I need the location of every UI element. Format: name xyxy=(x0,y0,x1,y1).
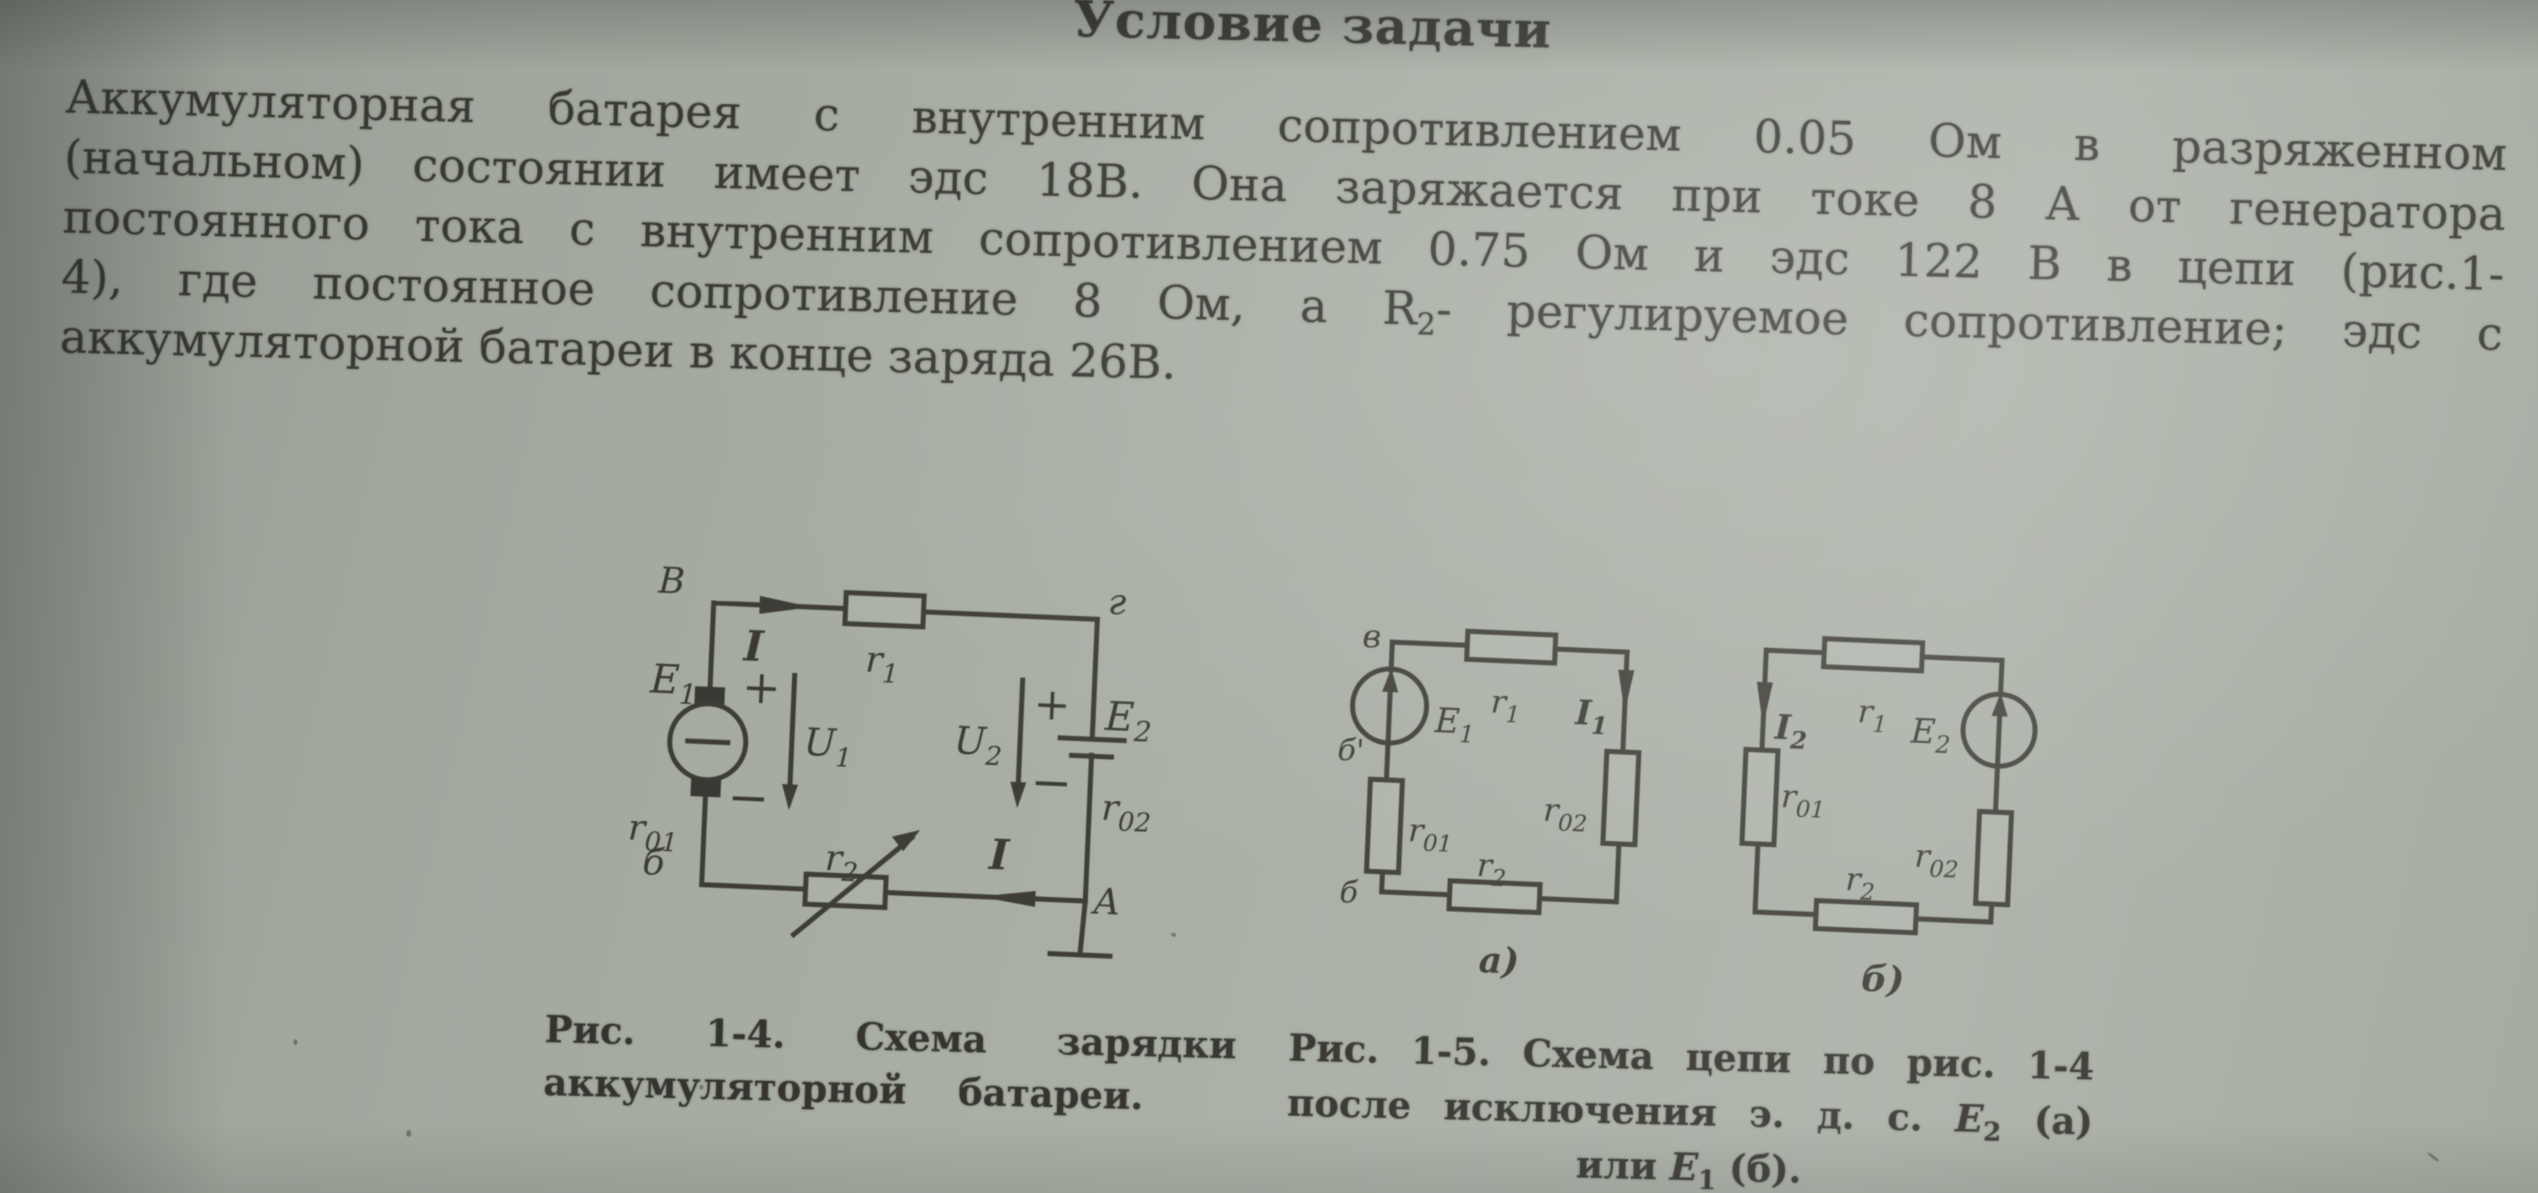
caption-text: (а) xyxy=(2001,1097,2094,1143)
subfigure-label-a: а) xyxy=(1478,939,1520,983)
figure-1-4-caption: Рис. 1-4. Схема зарядки аккумуляторной б… xyxy=(543,1003,1237,1125)
resistor-r01-icon xyxy=(1367,779,1403,872)
i1-arrowhead-icon xyxy=(1617,670,1635,713)
minus-sign-left: − xyxy=(726,768,770,828)
emf2-label: E2 xyxy=(1909,711,1952,759)
battery-long-plate-icon xyxy=(1060,738,1124,741)
battery-short-plate-icon xyxy=(1072,755,1112,757)
i2-arrowhead-icon xyxy=(1755,682,1773,727)
node-label-g: г xyxy=(1107,582,1127,624)
u2-arrowhead-icon xyxy=(1009,782,1026,809)
subfigure-label-b: б) xyxy=(1860,958,1905,1002)
r1-label: r1 xyxy=(1857,692,1889,738)
source-terminal-bottom-icon xyxy=(690,778,721,797)
node-label-a: А xyxy=(1089,881,1121,923)
r1-label: r1 xyxy=(1490,682,1522,728)
caption-text: после исключения э. д. с. xyxy=(1287,1081,1956,1141)
resistor-r1-icon xyxy=(1467,631,1556,663)
problem-statement: Аккумуляторная батарея с внутренним сопр… xyxy=(59,67,2507,424)
caption-text: или xyxy=(1576,1142,1671,1188)
emf1-symbol: E xyxy=(1669,1145,1698,1190)
page-sheet: Условие задачи Аккумуляторная батарея с … xyxy=(0,0,2538,1193)
dust-speck xyxy=(406,1130,411,1137)
r02-label: r02 xyxy=(1542,791,1588,838)
i1-label: I1 xyxy=(1573,693,1609,740)
r2-subscript: 2 xyxy=(1416,308,1436,343)
i2-label: I2 xyxy=(1773,708,1809,755)
emf2-subscript: 2 xyxy=(1983,1117,2002,1147)
current-label-bottom: I xyxy=(987,830,1011,880)
resistor-r02-icon xyxy=(1976,811,2012,904)
r02-label: r02 xyxy=(1100,788,1152,839)
node-label-v: в xyxy=(1362,617,1382,656)
u2-arrow-shaft xyxy=(1018,680,1023,786)
u1-arrow-shaft xyxy=(790,675,795,788)
emf1-label: E1 xyxy=(1433,701,1476,749)
page-title: Условие задачи xyxy=(1022,0,1603,61)
resistor-r01-icon xyxy=(1742,749,1778,844)
r01-label: r01 xyxy=(1407,811,1453,858)
dust-speck xyxy=(1171,933,1176,937)
caption-text: (б). xyxy=(1716,1146,1802,1192)
emf1-subscript: 1 xyxy=(1697,1166,1716,1193)
resistor-r1-icon xyxy=(1824,639,1923,671)
plus-sign-right: + xyxy=(1033,679,1072,732)
figure-1-5b-circuit-diagram: I2 r1 E2 r01 r02 r2 б) xyxy=(1727,609,2076,1023)
node-label-v: В xyxy=(657,561,686,603)
ground-stem xyxy=(1080,901,1085,953)
minus-sign-right: − xyxy=(1029,753,1073,813)
u1-arrowhead-icon xyxy=(781,784,798,811)
resistor-r02-icon xyxy=(1603,751,1639,844)
node-label-b: б xyxy=(1339,875,1359,911)
source-arrow-shaft xyxy=(1998,710,2000,762)
generator-minus-bar-icon xyxy=(688,741,728,743)
ground-bar-icon xyxy=(1050,954,1110,957)
plus-sign-left: + xyxy=(741,659,782,715)
source-arrow-shaft xyxy=(1388,686,1390,740)
node-label-b: б xyxy=(642,842,667,884)
resistor-r1-icon xyxy=(845,593,924,627)
figure-1-5-caption: Рис. 1-5. Схема цепи по рис. 1-4 после и… xyxy=(1285,1021,2095,1193)
r01-label: r01 xyxy=(1780,777,1826,824)
u2-label: U2 xyxy=(953,718,1004,772)
pencil-mark xyxy=(2427,1152,2440,1163)
emf2-symbol: E xyxy=(1955,1096,1984,1141)
emf1-label: E1 xyxy=(648,656,698,711)
textbook-page-photo: Условие задачи Аккумуляторная батарея с … xyxy=(0,0,2538,1193)
current-arrow-top-icon xyxy=(759,596,812,616)
figure-1-4-circuit-diagram: I r1 В г E1 + − U1 r01 б E2 + xyxy=(594,541,1211,986)
node-label-b-prime: б' xyxy=(1337,733,1365,769)
r2-label: r2 xyxy=(1844,860,1876,906)
figure-1-5a-circuit-diagram: в E1 б' r01 б r1 I1 r02 r2 а) xyxy=(1317,600,1673,1004)
u1-label: U1 xyxy=(803,720,854,774)
r02-label: r02 xyxy=(1913,837,1959,884)
current-arrow-bottom-icon xyxy=(979,889,1036,907)
dust-speck xyxy=(293,1039,297,1045)
resistor-r1-label: r1 xyxy=(864,639,900,689)
